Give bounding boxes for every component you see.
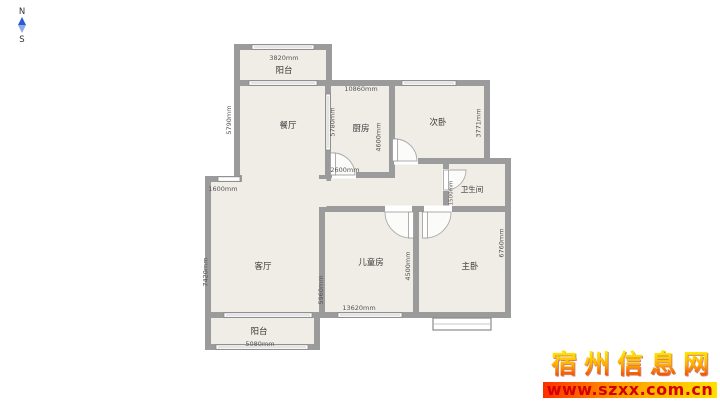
watermark: 宿州信息网 www.szxx.com.cn — [543, 350, 717, 398]
door-leaf-children — [409, 212, 414, 238]
dim-bedroom2-right-height: 3771mm — [475, 108, 483, 137]
room-living — [208, 179, 322, 315]
dim-living-right-height: 5960mm — [317, 275, 325, 304]
dim-living-top-width: 1600mm — [208, 185, 237, 193]
compass-needle-south-icon — [18, 25, 26, 33]
dim-balcony-bottom-width: 5080mm — [245, 340, 274, 348]
dim-bathroom-left-height: 1500mm — [449, 181, 455, 206]
label-children: 儿童房 — [358, 257, 384, 268]
dim-living-left-height: 7420mm — [202, 257, 210, 286]
dim-balcony-top-width: 3820mm — [269, 54, 298, 62]
dim-dining-left-height: 5790mm — [225, 105, 233, 134]
compass: N S — [18, 7, 26, 45]
dim-children-right-height: 4500mm — [404, 251, 412, 280]
dim-kitchen-left-height: 5780mm — [329, 107, 337, 136]
door-threshold-children — [385, 206, 412, 213]
label-balcony-bottom: 阳台 — [250, 326, 267, 337]
floor-plan-page: N S — [0, 0, 720, 405]
door-threshold-master — [424, 206, 452, 213]
entry-door — [218, 177, 240, 182]
floor-plan-svg: N S — [0, 0, 720, 405]
label-dining: 餐厅 — [279, 121, 297, 131]
label-bathroom: 卫生间 — [461, 184, 484, 194]
label-bedroom2: 次卧 — [429, 117, 447, 128]
label-balcony-top: 阳台 — [275, 65, 292, 76]
dim-kitchen-bottom-width: 2600mm — [330, 166, 359, 174]
room-balcony-top — [237, 47, 329, 83]
watermark-site-name: 宿州信息网 — [543, 350, 720, 381]
dim-kitchen-top-width: 10860mm — [344, 85, 377, 93]
dim-master-right-height: 6760mm — [498, 228, 506, 257]
dim-children-bottom-width: 13620mm — [342, 304, 375, 312]
label-master: 主卧 — [461, 261, 479, 272]
label-kitchen: 厨房 — [352, 123, 369, 134]
compass-needle-north-icon — [18, 17, 26, 25]
compass-north-label: N — [19, 7, 25, 17]
dim-kitchen-right-height: 4600mm — [375, 122, 383, 151]
door-leaf-bedroom2 — [393, 139, 398, 161]
door-leaf-master — [423, 212, 428, 238]
watermark-site-url: www.szxx.com.cn — [543, 382, 717, 398]
opening-dining-living — [242, 175, 319, 184]
opening-living-hallway — [318, 179, 327, 207]
compass-south-label: S — [19, 35, 24, 45]
label-living: 客厅 — [254, 261, 272, 272]
